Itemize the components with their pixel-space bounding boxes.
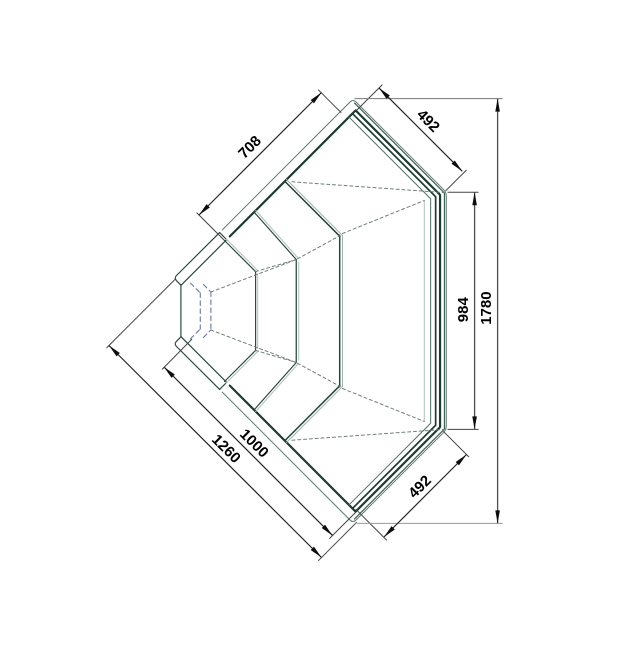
svg-text:984: 984 <box>455 297 472 323</box>
svg-text:1780: 1780 <box>478 291 495 324</box>
